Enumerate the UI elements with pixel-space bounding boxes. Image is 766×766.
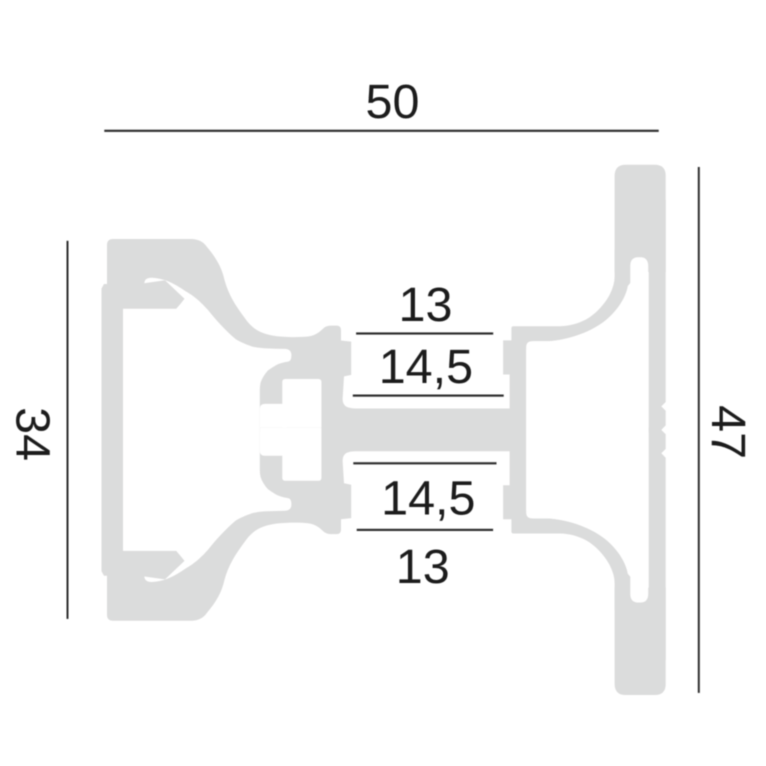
svg-text:13: 13 [396,540,450,594]
svg-text:13: 13 [399,278,453,332]
svg-text:50: 50 [366,75,420,129]
svg-text:14,5: 14,5 [379,340,473,394]
svg-text:47: 47 [701,405,755,459]
svg-text:14,5: 14,5 [381,471,475,525]
svg-text:34: 34 [6,407,60,461]
